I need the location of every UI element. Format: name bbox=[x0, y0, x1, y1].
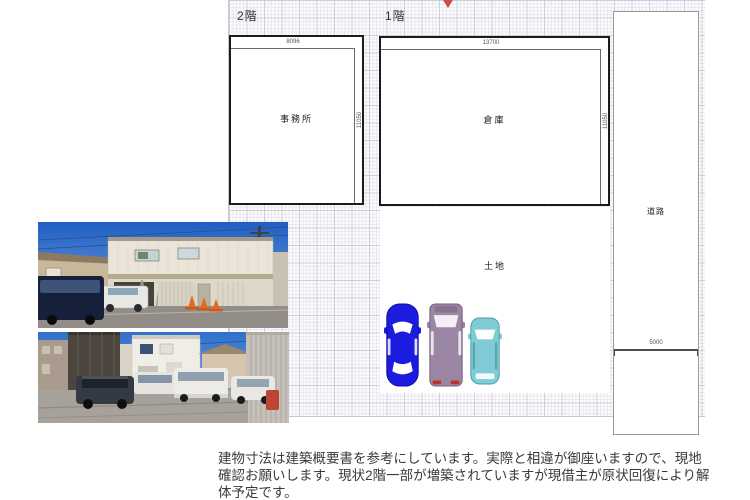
floor2-plan-rect: 8096 11050 事務所 bbox=[229, 35, 364, 205]
car-side-window bbox=[388, 338, 391, 355]
photo-building-exterior bbox=[38, 222, 288, 328]
car-side-window bbox=[415, 338, 418, 355]
car-rear-window bbox=[476, 373, 495, 379]
floor2-room-label: 事務所 bbox=[231, 112, 362, 125]
car-roof-rail bbox=[495, 342, 497, 369]
floor2-inner-wall-line-top bbox=[231, 48, 355, 49]
floor2-title: 2階 bbox=[237, 7, 258, 24]
car-top-view-teal bbox=[468, 317, 502, 385]
car-taillight bbox=[433, 380, 442, 384]
photo2-scene bbox=[38, 332, 289, 423]
note-text: 建物寸法は建築概要書を参考にしています。実際と相違が御座いますので、現地確認お願… bbox=[218, 450, 714, 500]
road-width-dimension: 5000 bbox=[614, 340, 698, 346]
car-windshield bbox=[434, 315, 459, 327]
red-cursor-marker bbox=[443, 0, 453, 8]
floor2-width-dimension: 8096 bbox=[231, 38, 355, 47]
road-label: 道路 bbox=[614, 206, 698, 217]
car-side-window bbox=[431, 331, 434, 355]
floor1-inner-wall-line-top bbox=[381, 49, 601, 50]
car-taillight bbox=[451, 380, 460, 384]
road-strip: 道路 5000 bbox=[613, 11, 699, 435]
floor1-room-label: 倉庫 bbox=[381, 113, 608, 126]
floor1-title: 1階 bbox=[385, 7, 406, 24]
photo-parking-lot bbox=[38, 332, 289, 423]
road-dimension-line bbox=[614, 349, 698, 351]
car-hood bbox=[435, 306, 458, 313]
photo1-scene bbox=[38, 222, 288, 328]
car-windshield bbox=[475, 330, 496, 340]
property-plan-page: 2階 1階 8096 11050 事務所 13700 11050 倉庫 土地 bbox=[0, 0, 750, 500]
car-side-window bbox=[458, 331, 461, 355]
car-top-view-blue bbox=[384, 303, 421, 387]
car-roof-rail bbox=[473, 342, 475, 369]
floor1-inner-wall-line-right bbox=[600, 49, 601, 204]
land-label: 土地 bbox=[380, 259, 610, 272]
floor1-width-dimension: 13700 bbox=[381, 39, 601, 48]
floor2-inner-wall-line-right bbox=[354, 48, 355, 203]
land-area: 土地 bbox=[380, 207, 610, 393]
car-top-view-purple bbox=[427, 303, 465, 387]
floor1-plan-rect: 13700 11050 倉庫 bbox=[379, 36, 610, 206]
